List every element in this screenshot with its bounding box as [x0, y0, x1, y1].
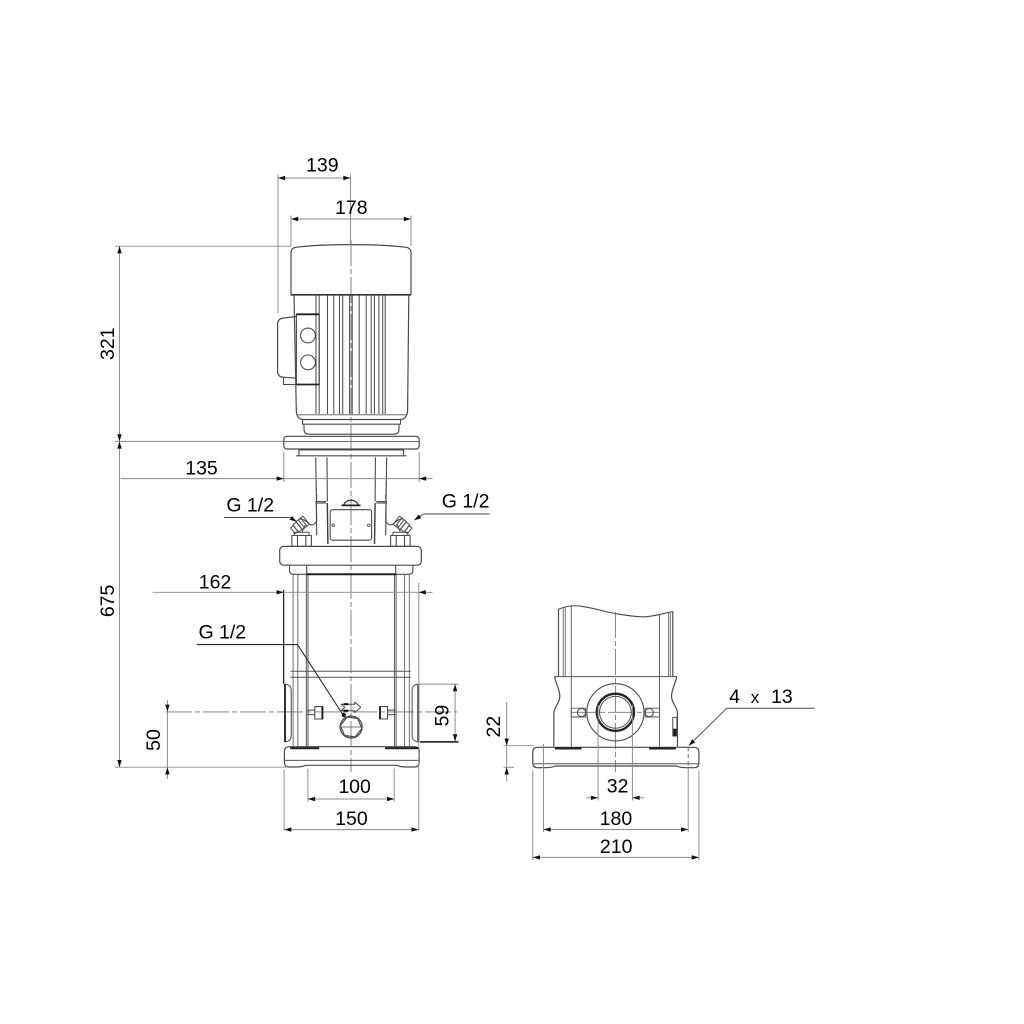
svg-text:G 1/2: G 1/2 — [442, 491, 490, 513]
svg-text:100: 100 — [338, 776, 371, 798]
svg-text:59: 59 — [431, 705, 453, 727]
svg-text:x: x — [751, 688, 760, 707]
svg-text:675: 675 — [97, 584, 119, 617]
svg-text:178: 178 — [335, 197, 368, 219]
svg-text:321: 321 — [97, 327, 119, 360]
svg-text:22: 22 — [483, 716, 505, 738]
svg-text:162: 162 — [199, 571, 232, 593]
svg-text:180: 180 — [600, 808, 633, 830]
svg-text:210: 210 — [600, 836, 633, 858]
svg-text:32: 32 — [607, 776, 629, 798]
svg-text:13: 13 — [771, 686, 793, 708]
svg-text:135: 135 — [185, 458, 218, 480]
svg-text:G 1/2: G 1/2 — [198, 622, 246, 644]
svg-text:4: 4 — [729, 686, 740, 708]
svg-text:150: 150 — [335, 808, 368, 830]
svg-text:G 1/2: G 1/2 — [226, 495, 274, 517]
svg-text:50: 50 — [143, 729, 165, 751]
svg-text:139: 139 — [306, 155, 339, 177]
